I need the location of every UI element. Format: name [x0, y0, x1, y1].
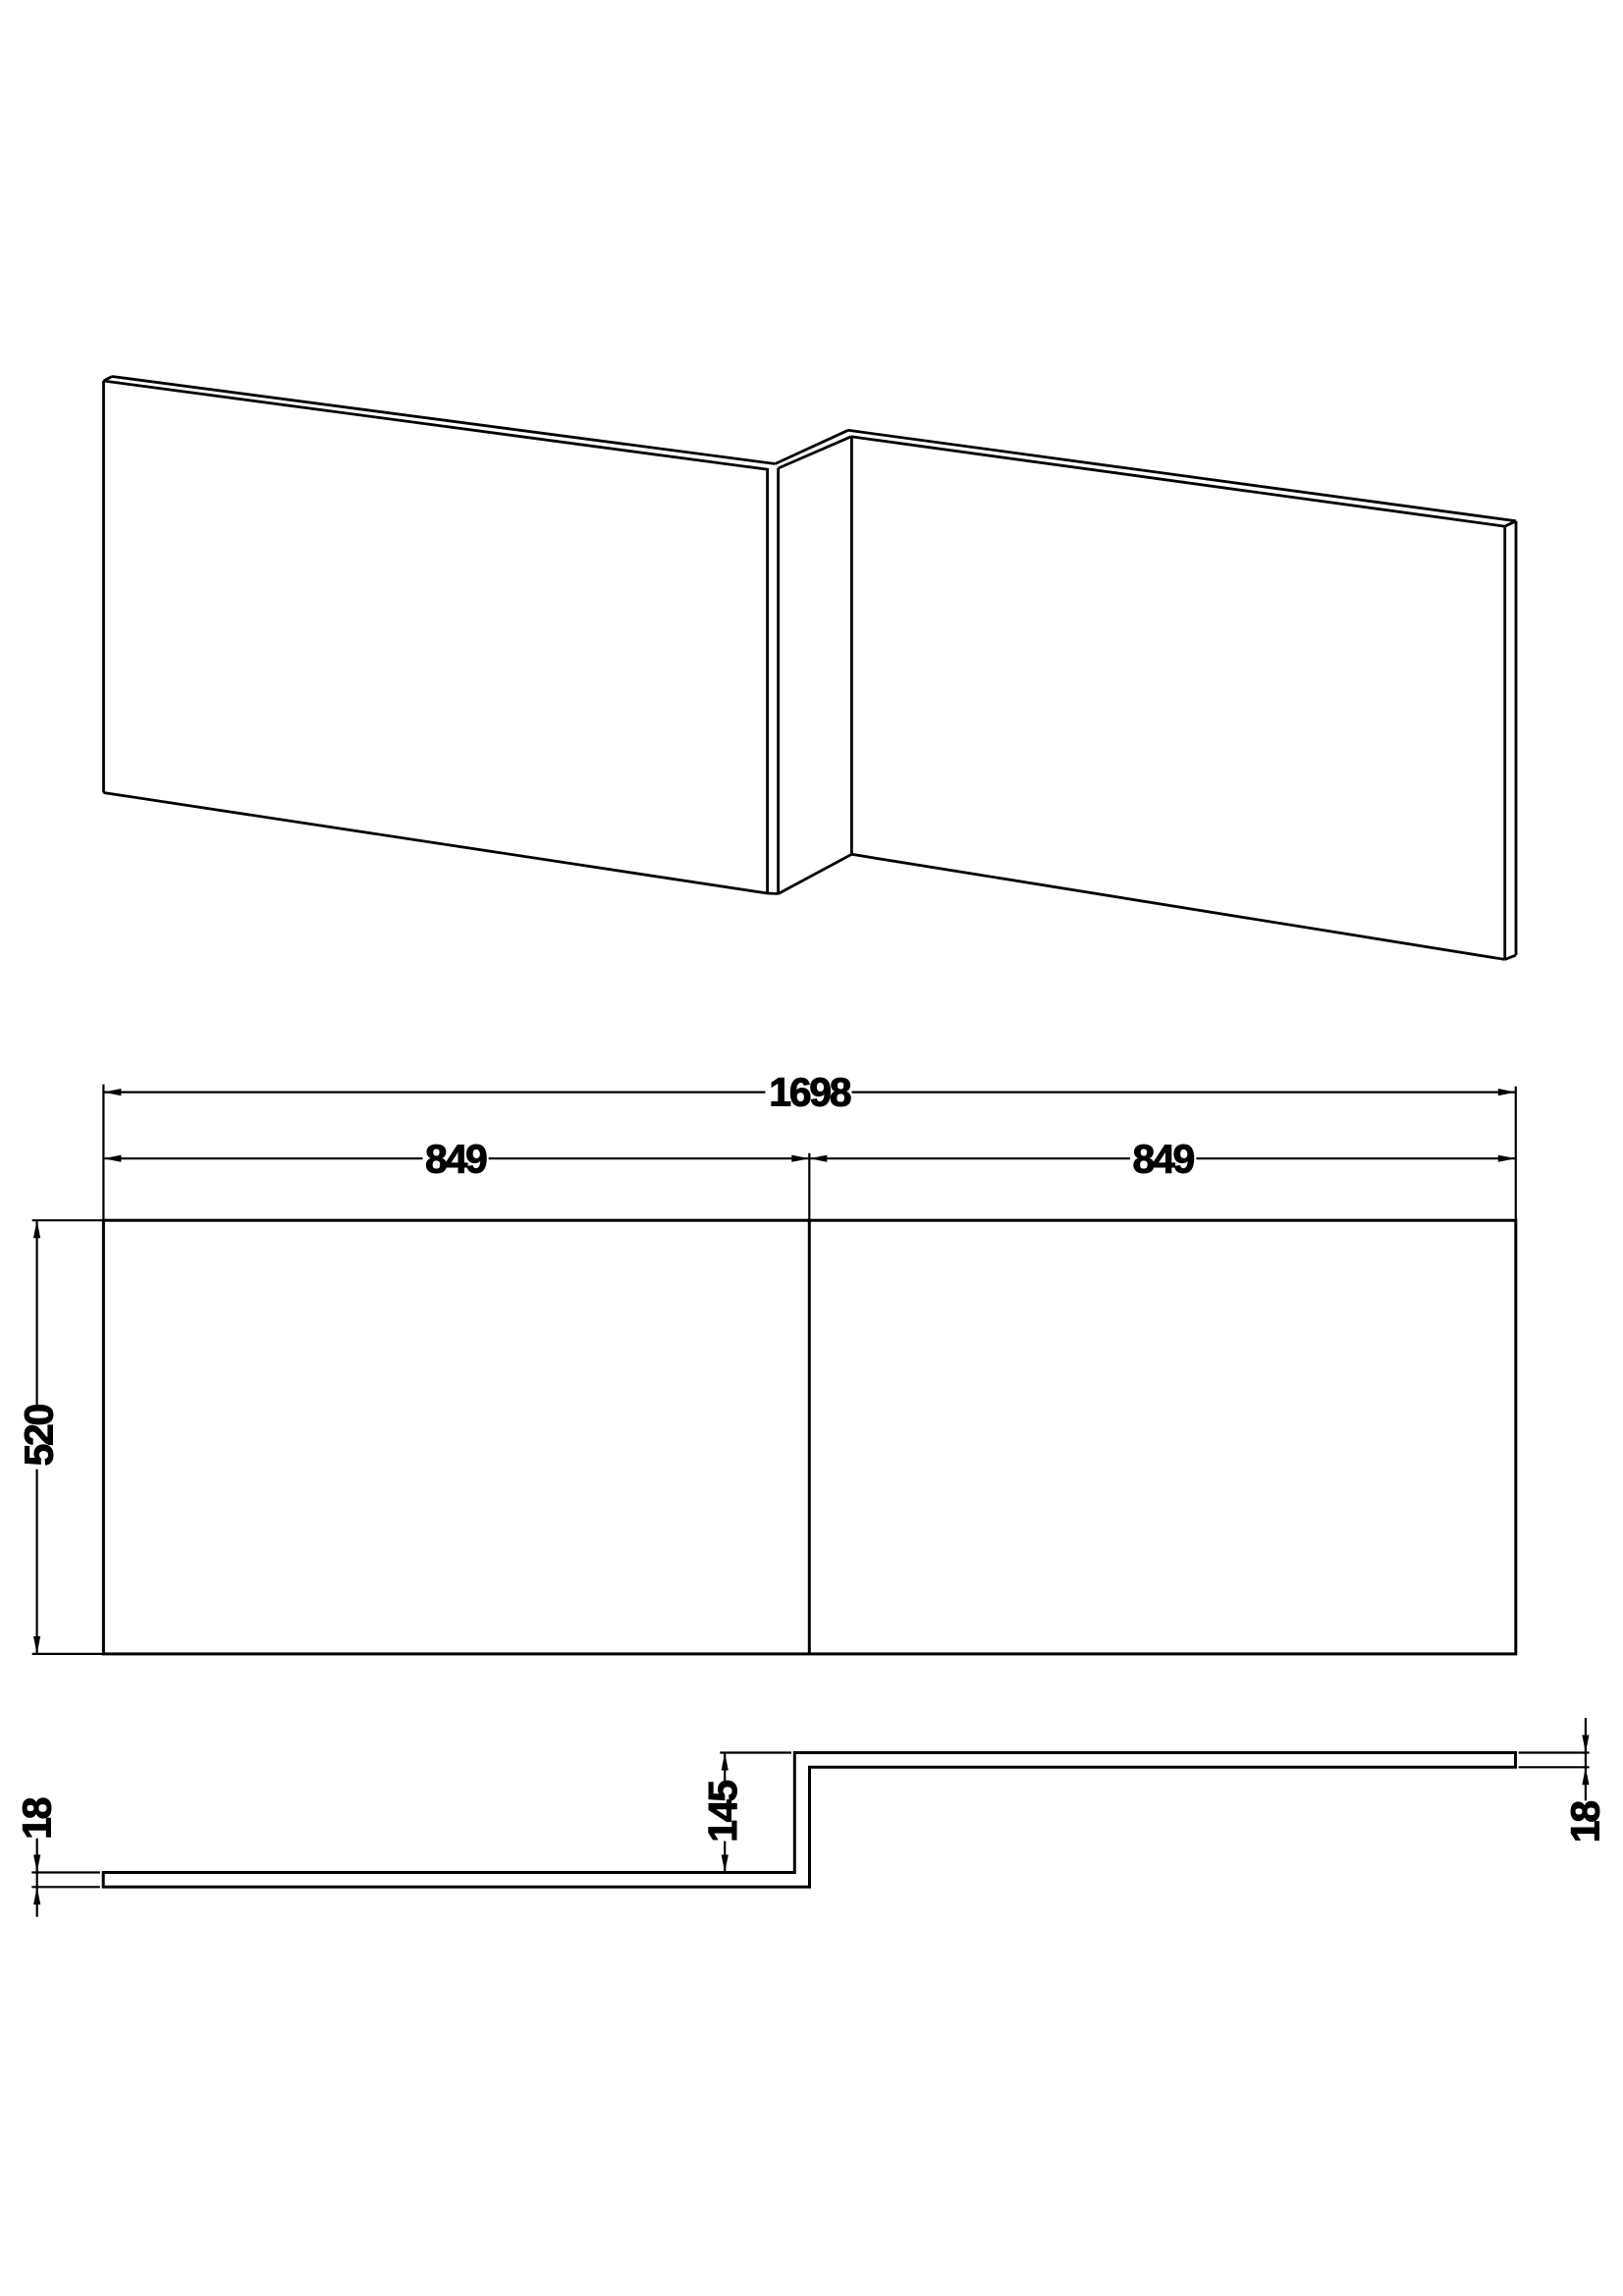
svg-text:520: 520	[17, 1404, 62, 1466]
svg-text:18: 18	[1562, 1801, 1607, 1843]
svg-text:849: 849	[425, 1136, 487, 1181]
svg-text:849: 849	[1132, 1136, 1194, 1181]
svg-text:1698: 1698	[769, 1070, 851, 1115]
svg-text:145: 145	[700, 1781, 745, 1842]
svg-text:18: 18	[15, 1797, 60, 1840]
